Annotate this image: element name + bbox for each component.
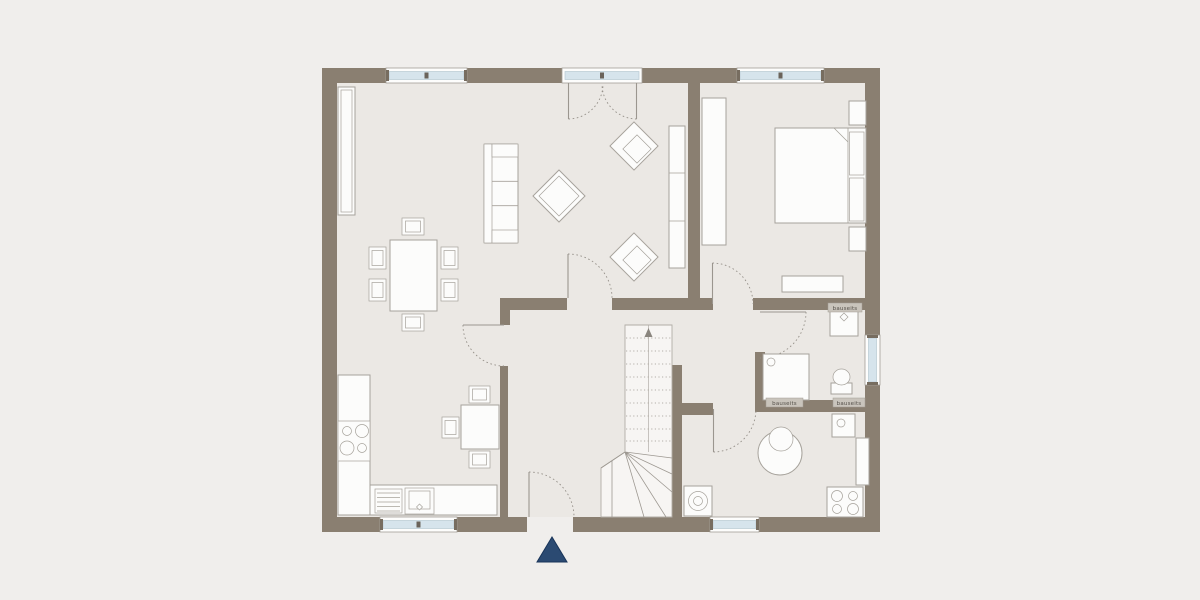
nightstand <box>849 101 866 125</box>
wall-hall-living <box>612 298 688 310</box>
dining-table <box>390 240 437 311</box>
washing-machine <box>684 486 712 516</box>
wall-utility-top <box>672 403 713 415</box>
cooktop <box>827 487 863 517</box>
bauseits-label: bauseits <box>837 401 862 407</box>
window-utility-bottom <box>710 517 759 532</box>
kitchen-chair <box>469 386 490 403</box>
wall-hall-living <box>500 298 567 310</box>
counter <box>856 438 869 485</box>
bench <box>782 276 843 292</box>
drainer <box>375 489 402 513</box>
wall-segment <box>467 68 564 83</box>
window-living-top <box>386 68 467 83</box>
bauseits-label: bauseits <box>833 306 858 312</box>
small-washbasin <box>832 414 855 437</box>
dining-chair <box>441 279 458 301</box>
shelf-inner <box>341 90 352 212</box>
wall-stair <box>672 365 682 517</box>
wall-segment <box>322 68 337 532</box>
pillow <box>850 132 865 175</box>
wall-segment <box>865 68 880 335</box>
kitchen-table <box>461 405 499 449</box>
cooktop <box>338 421 370 461</box>
wall-segment <box>642 68 738 83</box>
wall-kitchen-hall <box>500 366 508 517</box>
bauseits-label: bauseits <box>772 401 797 407</box>
wall-segment <box>759 517 880 532</box>
shower <box>763 354 809 400</box>
toilet <box>831 369 852 394</box>
shower-head-icon <box>767 358 775 366</box>
dining-chair <box>369 247 386 269</box>
wall-segment <box>322 517 380 532</box>
floor-plan: bauseits bauseits bauseits <box>0 0 1200 600</box>
kitchen-chair <box>469 451 490 468</box>
window-bathroom-right <box>865 335 880 385</box>
dining-chair <box>369 279 386 301</box>
dining-chair <box>402 218 424 235</box>
dining-chair <box>402 314 424 331</box>
window-bedroom-top <box>737 68 824 83</box>
double-bed <box>775 128 866 223</box>
dining-chair <box>441 247 458 269</box>
window-kitchen-bottom <box>380 517 457 532</box>
sofa <box>484 144 518 243</box>
wardrobe <box>702 98 726 245</box>
wall-segment <box>457 517 527 532</box>
wall-living-bedroom <box>688 83 700 310</box>
pillow <box>850 178 865 221</box>
sink <box>405 488 434 514</box>
kitchen-chair <box>442 417 459 438</box>
tv-board <box>669 126 685 268</box>
wall-segment <box>688 298 713 310</box>
washbasin <box>830 311 858 336</box>
nightstand <box>849 227 866 251</box>
wall-segment <box>573 517 710 532</box>
wall-segment <box>500 298 510 325</box>
